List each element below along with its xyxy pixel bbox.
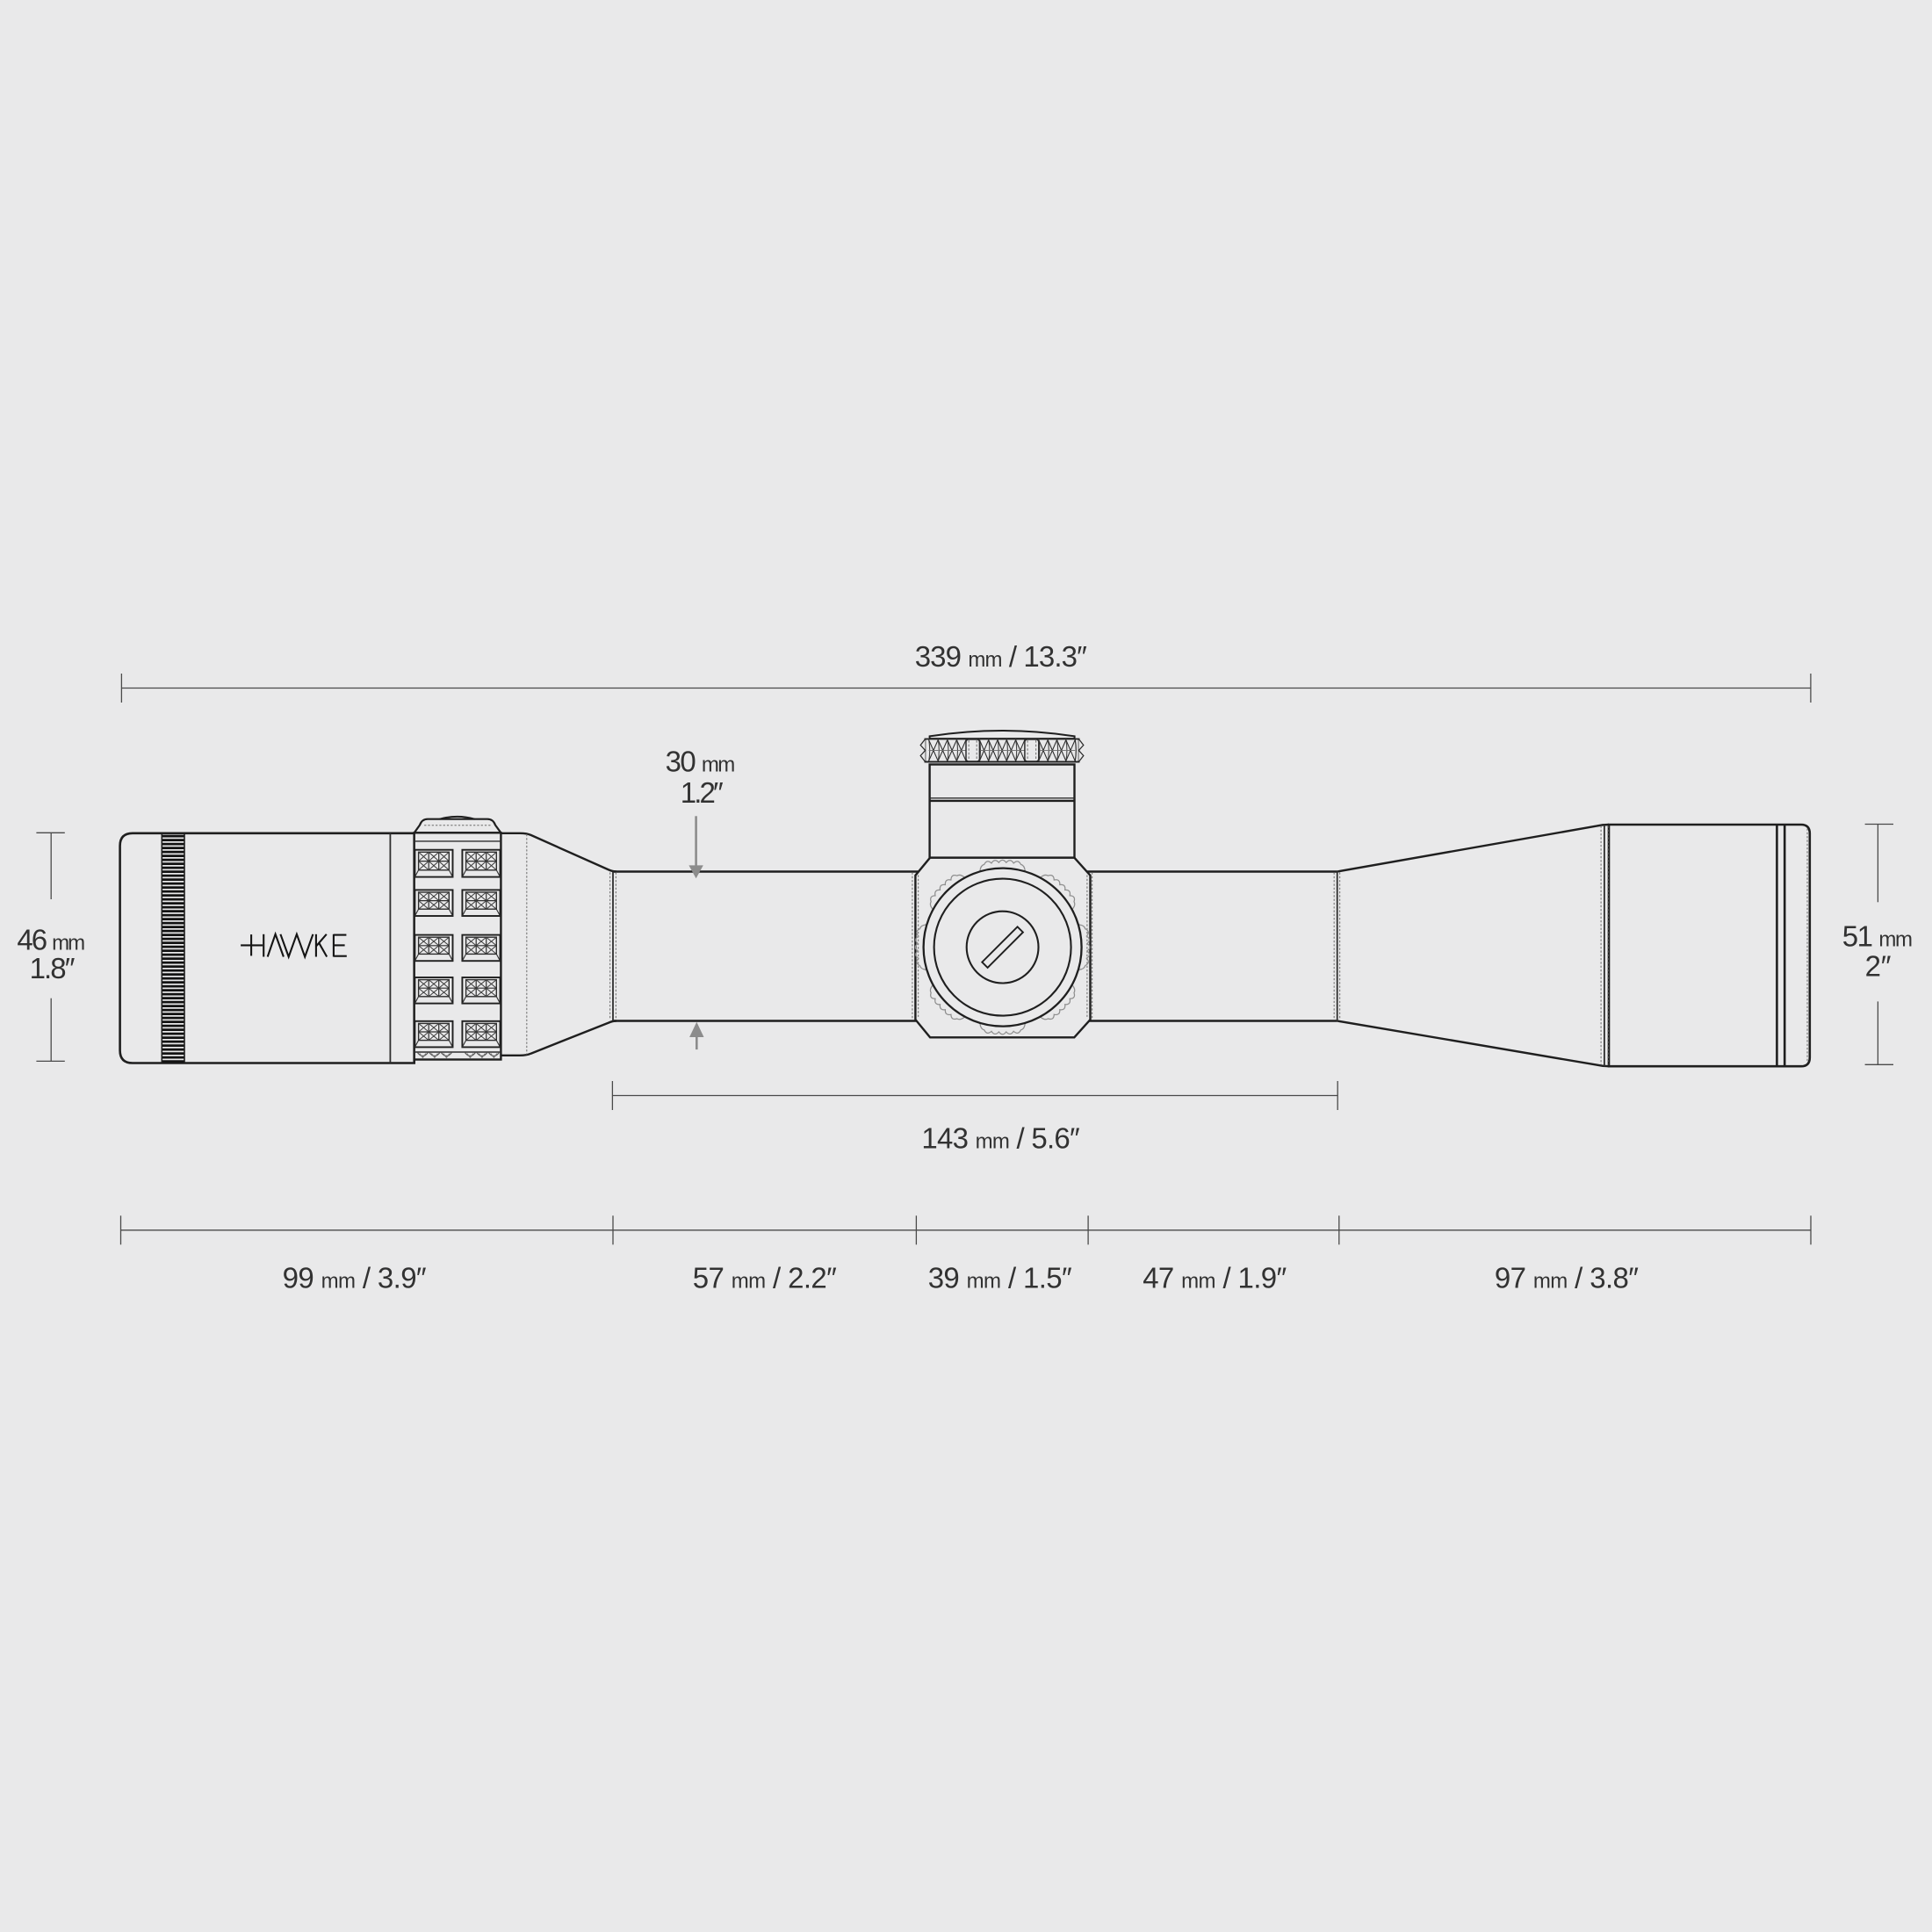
svg-text:39 mm / 1.5″: 39 mm / 1.5″	[928, 1261, 1072, 1294]
svg-text:99 mm / 3.9″: 99 mm / 3.9″	[283, 1261, 427, 1294]
svg-text:339 mm / 13.3″: 339 mm / 13.3″	[915, 640, 1087, 673]
svg-text:1.2″: 1.2″	[681, 776, 724, 809]
svg-text:47 mm / 1.9″: 47 mm / 1.9″	[1143, 1261, 1287, 1294]
svg-text:57 mm / 2.2″: 57 mm / 2.2″	[693, 1261, 837, 1294]
svg-text:1.8″: 1.8″	[30, 952, 76, 984]
svg-text:2″: 2″	[1865, 949, 1892, 982]
svg-text:97 mm / 3.8″: 97 mm / 3.8″	[1495, 1261, 1639, 1294]
